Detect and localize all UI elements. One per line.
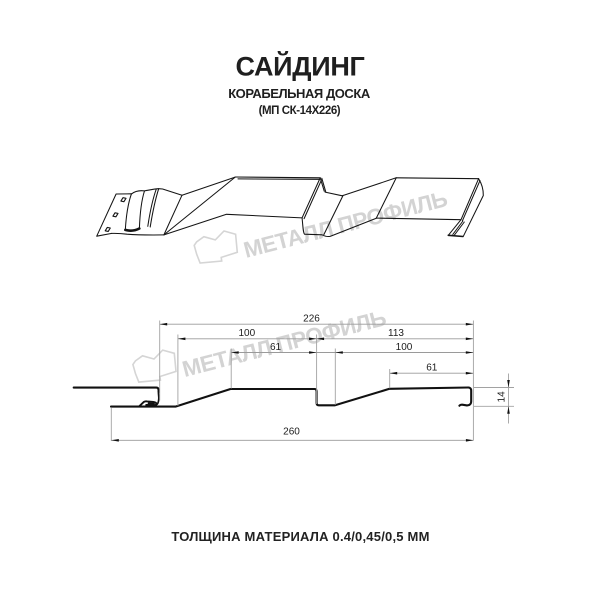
svg-text:100: 100 (238, 328, 255, 339)
svg-text:МЕТАЛЛ ПРОФИЛЬ: МЕТАЛЛ ПРОФИЛЬ (241, 186, 450, 263)
svg-text:260: 260 (283, 426, 300, 437)
svg-text:100: 100 (396, 342, 413, 353)
svg-text:МЕТАЛЛ ПРОФИЛЬ: МЕТАЛЛ ПРОФИЛЬ (180, 305, 389, 382)
svg-text:(МП СК-14Х226): (МП СК-14Х226) (259, 105, 341, 117)
svg-text:14: 14 (497, 391, 508, 403)
svg-text:61: 61 (426, 362, 438, 373)
svg-text:КОРАБЕЛЬНАЯ ДОСКА: КОРАБЕЛЬНАЯ ДОСКА (228, 86, 371, 101)
svg-text:113: 113 (388, 328, 404, 339)
svg-text:226: 226 (303, 314, 320, 325)
svg-text:САЙДИНГ: САЙДИНГ (235, 50, 364, 81)
svg-text:ТОЛЩИНА МАТЕРИАЛА 0.4/0,45/0,5: ТОЛЩИНА МАТЕРИАЛА 0.4/0,45/0,5 ММ (171, 529, 429, 544)
svg-text:61: 61 (270, 342, 282, 353)
